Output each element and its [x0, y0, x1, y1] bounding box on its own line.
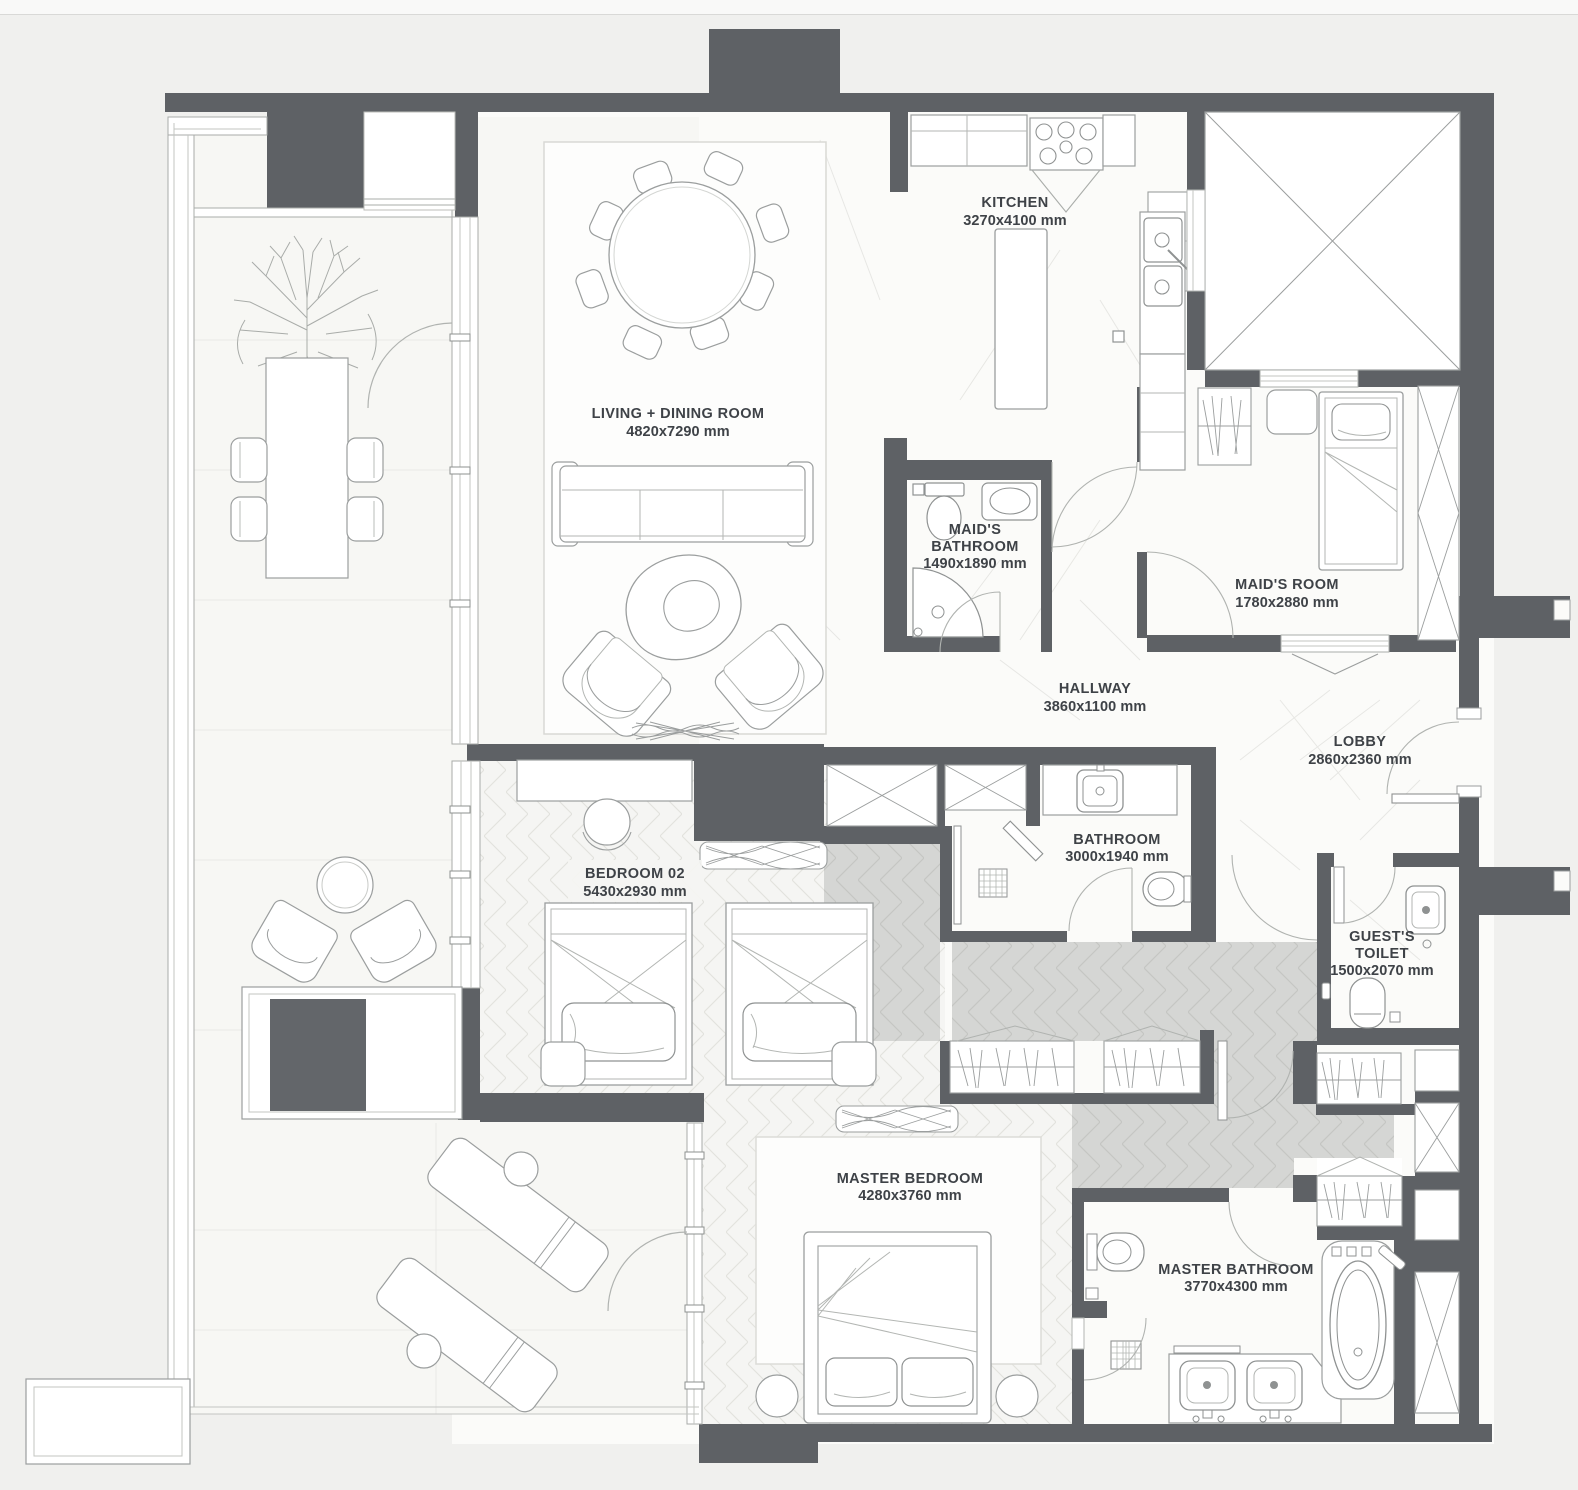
svg-text:3860x1100 mm: 3860x1100 mm	[1044, 699, 1147, 715]
svg-text:MAID'S ROOM: MAID'S ROOM	[1235, 577, 1339, 593]
svg-text:4820x7290 mm: 4820x7290 mm	[626, 424, 730, 440]
svg-text:GUEST'S: GUEST'S	[1349, 929, 1415, 945]
svg-text:MAID'S: MAID'S	[949, 522, 1002, 538]
svg-text:MASTER BATHROOM: MASTER BATHROOM	[1158, 1262, 1314, 1278]
svg-text:HALLWAY: HALLWAY	[1059, 681, 1131, 697]
svg-text:BATHROOM: BATHROOM	[931, 539, 1019, 555]
svg-text:MASTER BEDROOM: MASTER BEDROOM	[837, 1171, 984, 1187]
svg-text:4280x3760 mm: 4280x3760 mm	[858, 1188, 962, 1204]
svg-text:1490x1890 mm: 1490x1890 mm	[923, 556, 1027, 572]
svg-text:3270x4100 mm: 3270x4100 mm	[963, 213, 1067, 229]
svg-text:TOILET: TOILET	[1355, 946, 1409, 962]
svg-text:5430x2930 mm: 5430x2930 mm	[583, 884, 687, 900]
svg-text:LOBBY: LOBBY	[1334, 734, 1387, 750]
svg-text:BEDROOM 02: BEDROOM 02	[585, 866, 685, 882]
svg-text:2860x2360 mm: 2860x2360 mm	[1308, 752, 1412, 768]
svg-text:KITCHEN: KITCHEN	[981, 195, 1048, 211]
svg-text:3770x4300 mm: 3770x4300 mm	[1184, 1279, 1288, 1295]
svg-text:3000x1940 mm: 3000x1940 mm	[1065, 849, 1169, 865]
svg-text:1500x2070 mm: 1500x2070 mm	[1330, 963, 1434, 979]
svg-text:1780x2880 mm: 1780x2880 mm	[1235, 595, 1339, 611]
svg-text:LIVING + DINING ROOM: LIVING + DINING ROOM	[592, 406, 765, 422]
svg-text:BATHROOM: BATHROOM	[1073, 832, 1161, 848]
